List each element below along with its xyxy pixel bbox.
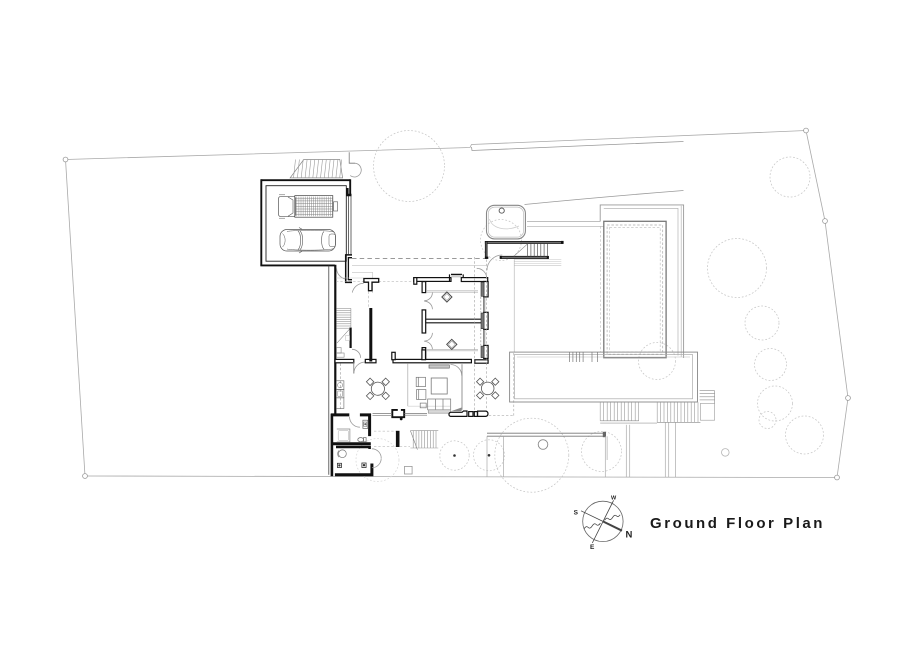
svg-text:Ground Floor Plan: Ground Floor Plan <box>650 515 825 532</box>
svg-text:N: N <box>626 530 633 541</box>
svg-text:E: E <box>590 544 595 551</box>
svg-text:S: S <box>574 510 579 517</box>
svg-text:W: W <box>611 496 617 502</box>
